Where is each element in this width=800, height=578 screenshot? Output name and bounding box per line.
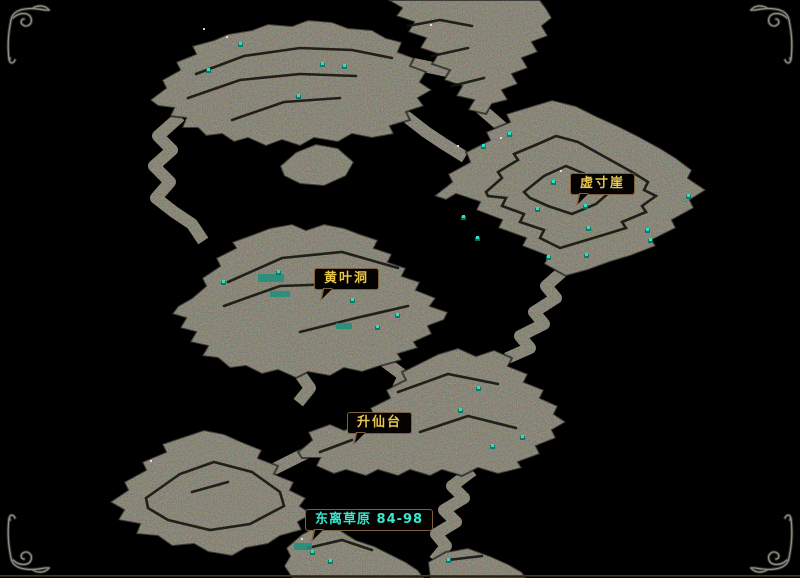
filigree-corner-icon-top-right [751, 6, 792, 63]
map-area-bottom-middle [284, 526, 424, 578]
filigree-corner-icon-bottom-left [8, 515, 49, 572]
frame-bottom-border [0, 575, 800, 577]
map-label-dong-li-cao-yuan[interactable]: 东离草原 84-98 [305, 509, 433, 531]
filigree-corner-icon-bottom-right [751, 515, 792, 572]
map-label-xu-cun-ya[interactable]: 虚寸崖 [570, 173, 635, 195]
map-label-text: 虚寸崖 [580, 176, 625, 191]
map-area-middle-left [172, 224, 448, 378]
game-map-viewport: 虚寸崖 黄叶洞 升仙台 东离草原 84-98 [0, 0, 800, 578]
map-label-huang-ye-dong[interactable]: 黄叶洞 [314, 268, 379, 290]
world-map[interactable] [0, 0, 800, 578]
map-label-text: 东离草原 84-98 [315, 512, 423, 527]
map-label-text: 升仙台 [357, 415, 402, 430]
map-label-sheng-xian-tai[interactable]: 升仙台 [347, 412, 412, 434]
map-area-bottom-left [110, 430, 312, 556]
map-label-text: 黄叶洞 [324, 271, 369, 286]
terrain-layer [110, 0, 706, 578]
filigree-corner-icon-top-left [8, 6, 49, 63]
